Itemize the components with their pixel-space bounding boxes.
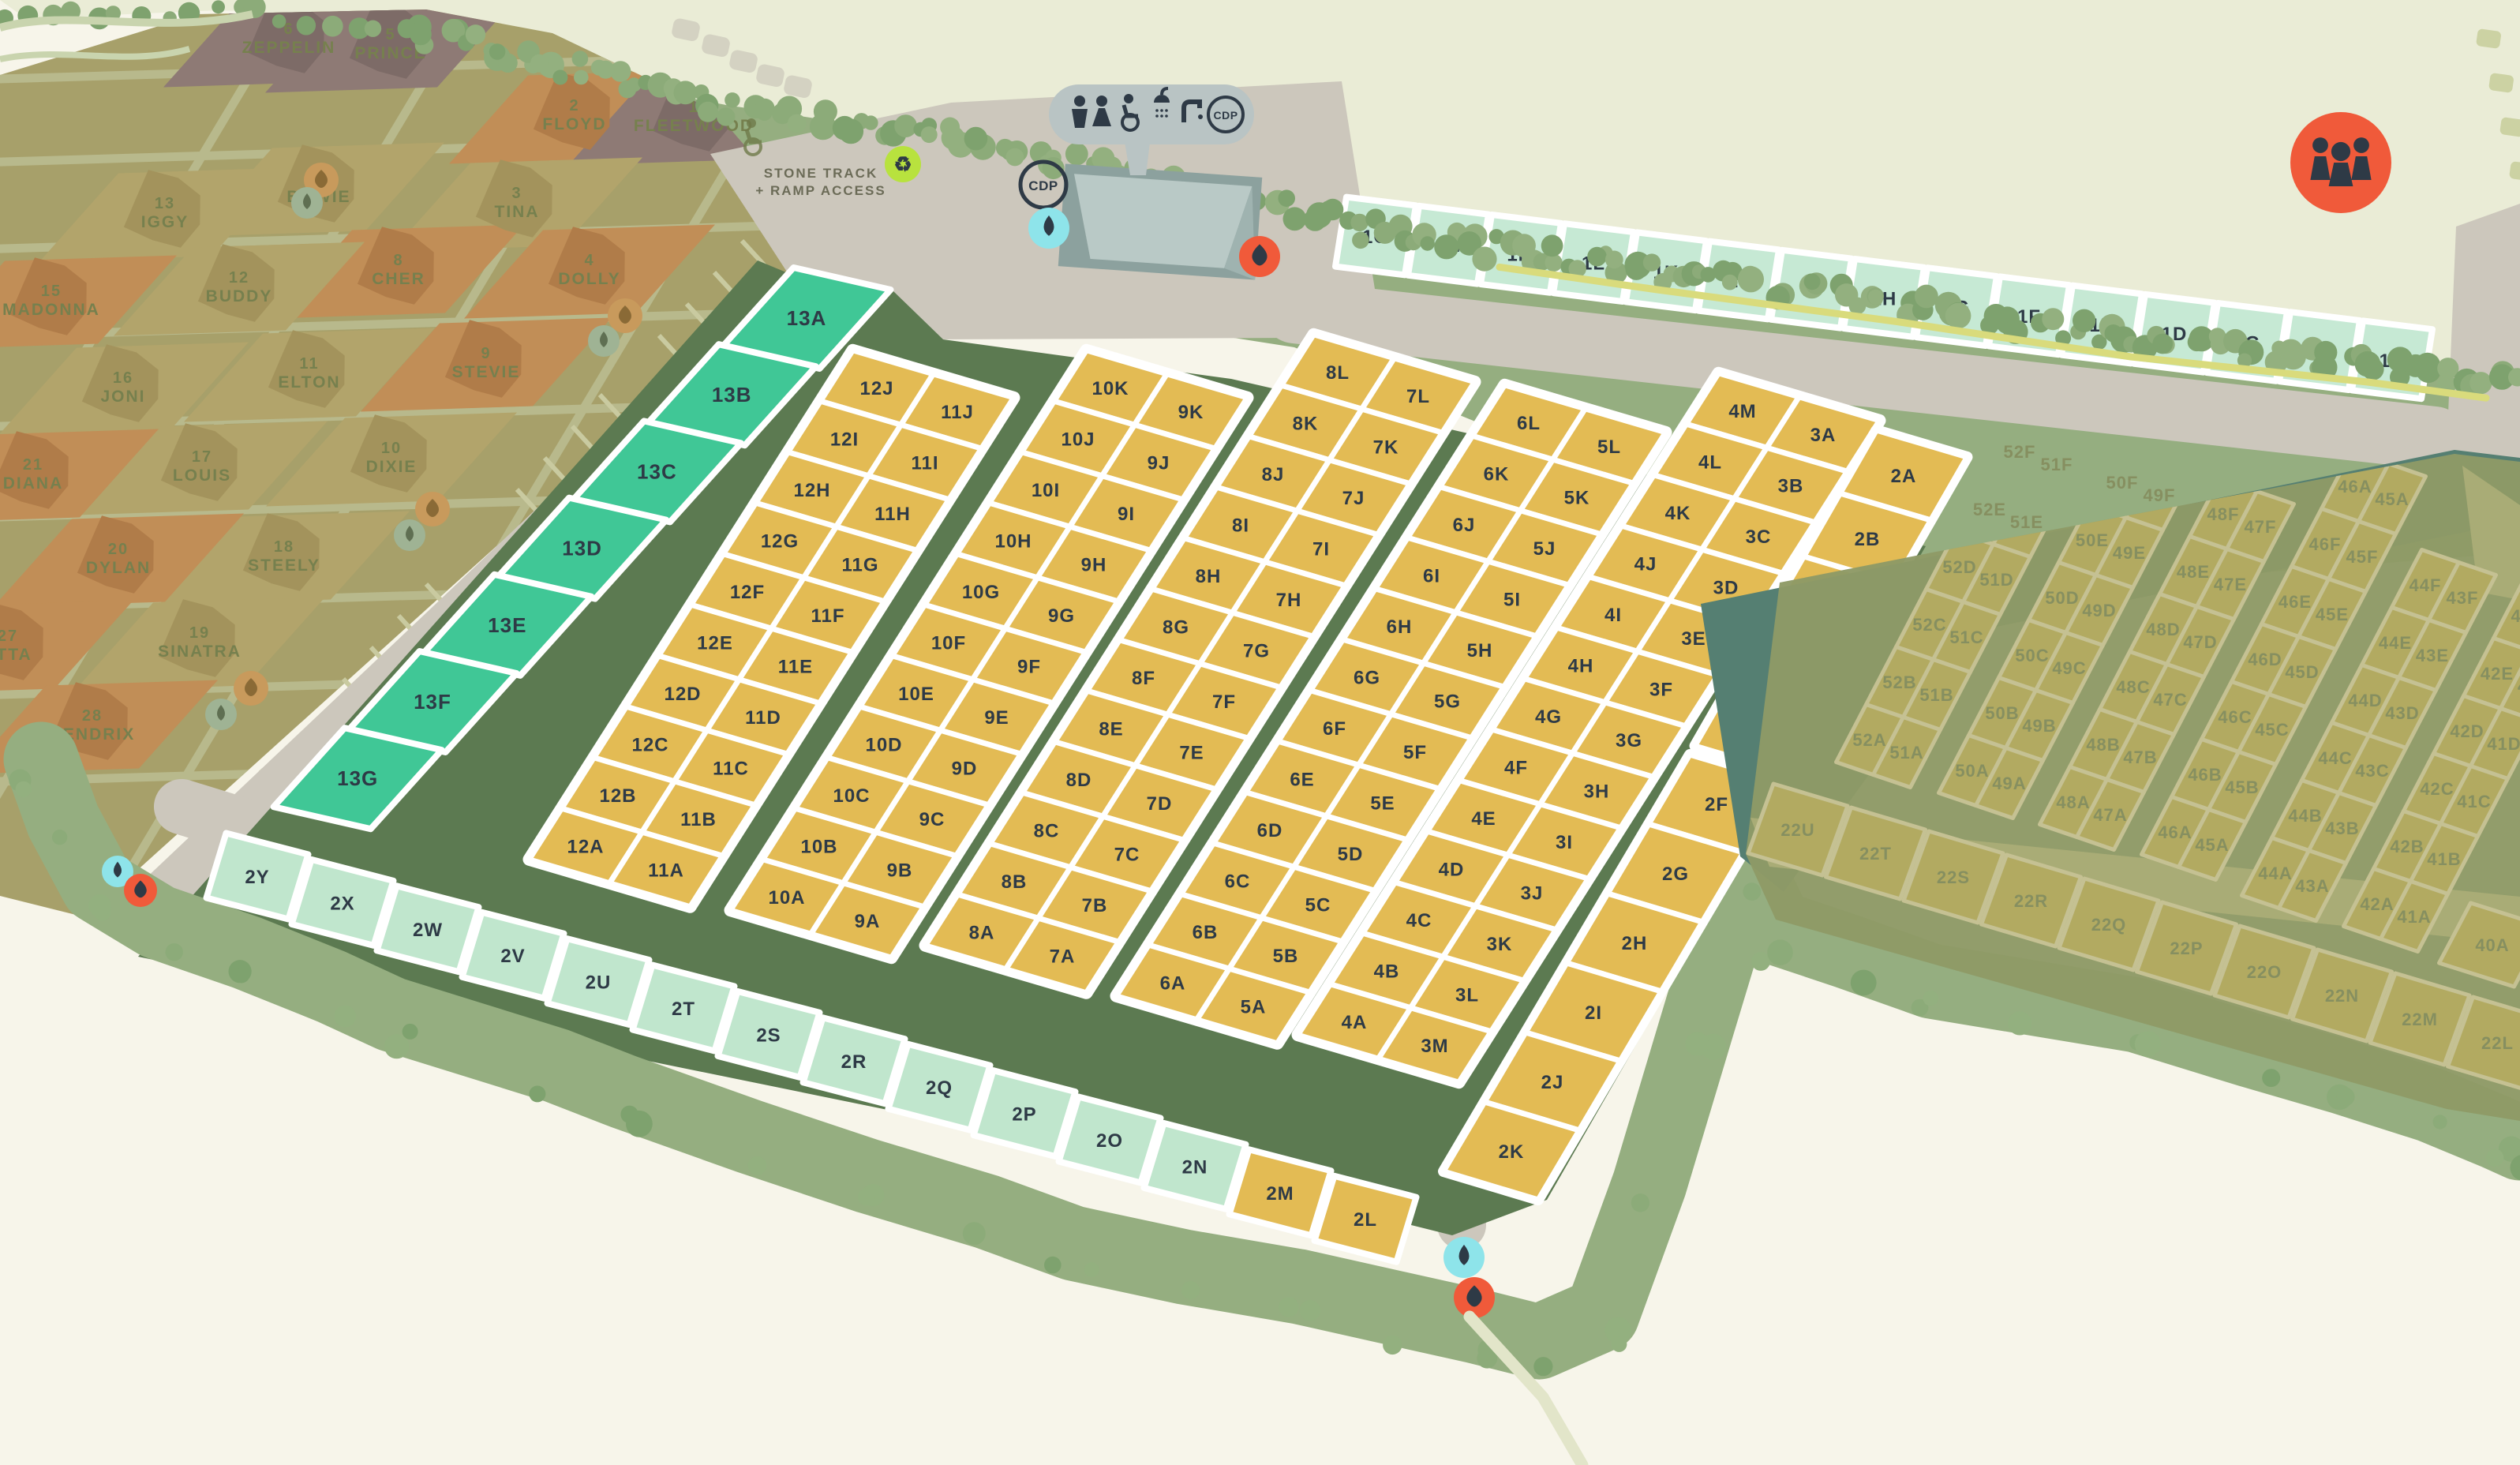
svg-text:42D: 42D	[2450, 721, 2484, 741]
svg-text:2S: 2S	[756, 1025, 781, 1046]
svg-text:7A: 7A	[1050, 946, 1076, 968]
svg-text:2V: 2V	[500, 946, 525, 967]
svg-text:JONI: JONI	[100, 388, 145, 406]
svg-text:3C: 3C	[1746, 526, 1772, 548]
svg-text:8J: 8J	[1262, 464, 1285, 485]
svg-text:49F: 49F	[2144, 485, 2176, 505]
svg-text:9J: 9J	[1148, 453, 1170, 474]
svg-text:2U: 2U	[586, 972, 612, 994]
svg-text:12C: 12C	[631, 735, 668, 756]
svg-text:7C: 7C	[1114, 845, 1140, 866]
svg-text:3D: 3D	[1713, 578, 1739, 599]
svg-text:3M: 3M	[1421, 1036, 1448, 1057]
svg-text:49E: 49E	[2113, 543, 2146, 563]
svg-text:2O: 2O	[1096, 1130, 1123, 1152]
svg-text:7E: 7E	[1179, 743, 1204, 764]
svg-text:46A: 46A	[2338, 477, 2372, 496]
svg-text:45C: 45C	[2255, 720, 2289, 740]
svg-text:44C: 44C	[2318, 748, 2352, 768]
svg-text:4K: 4K	[1665, 503, 1691, 524]
svg-text:48F: 48F	[2207, 504, 2240, 524]
svg-text:5I: 5I	[1503, 590, 1521, 611]
svg-text:2I: 2I	[1585, 1002, 1602, 1024]
svg-text:51A: 51A	[1889, 743, 1923, 762]
svg-text:51E: 51E	[2010, 512, 2043, 532]
svg-text:10B: 10B	[800, 837, 837, 858]
svg-text:9A: 9A	[855, 911, 881, 932]
svg-text:5J: 5J	[1533, 538, 1556, 560]
svg-text:6C: 6C	[1225, 871, 1251, 893]
svg-text:51D: 51D	[1979, 570, 2013, 590]
svg-text:49D: 49D	[2082, 601, 2116, 620]
svg-text:7I: 7I	[1312, 539, 1330, 560]
svg-text:17: 17	[192, 448, 212, 466]
svg-text:3: 3	[511, 185, 522, 202]
svg-text:4: 4	[584, 252, 594, 269]
svg-text:ETTA: ETTA	[0, 646, 32, 664]
svg-text:41D: 41D	[2487, 734, 2520, 754]
svg-text:11I: 11I	[911, 453, 938, 474]
svg-text:13D: 13D	[562, 537, 602, 560]
svg-text:46B: 46B	[2188, 765, 2222, 785]
svg-text:8A: 8A	[969, 923, 995, 944]
svg-text:47A: 47A	[2093, 805, 2127, 825]
svg-text:DIXIE: DIXIE	[366, 458, 418, 476]
svg-text:2Q: 2Q	[926, 1077, 953, 1099]
svg-text:44A: 44A	[2258, 864, 2292, 883]
svg-text:8K: 8K	[1293, 414, 1319, 435]
svg-text:42E: 42E	[2481, 664, 2514, 684]
svg-text:45E: 45E	[2316, 605, 2349, 624]
svg-text:4I: 4I	[1604, 605, 1622, 626]
svg-text:10J: 10J	[1061, 429, 1095, 451]
svg-text:43B: 43B	[2325, 819, 2359, 838]
svg-text:44F: 44F	[2410, 575, 2442, 595]
svg-text:43D: 43D	[2385, 703, 2419, 723]
svg-text:13E: 13E	[488, 613, 526, 637]
svg-text:51C: 51C	[1949, 628, 1983, 647]
svg-text:6E: 6E	[1290, 770, 1314, 791]
svg-text:6K: 6K	[1484, 464, 1510, 485]
svg-text:52C: 52C	[1912, 615, 1946, 635]
svg-text:46F: 46F	[2309, 534, 2342, 554]
svg-text:41B: 41B	[2427, 849, 2461, 869]
svg-text:47F: 47F	[2245, 517, 2277, 537]
svg-text:52F: 52F	[2004, 442, 2036, 462]
svg-text:4D: 4D	[1439, 860, 1465, 881]
svg-text:47D: 47D	[2183, 632, 2217, 652]
svg-text:STONE TRACK: STONE TRACK	[764, 166, 878, 181]
svg-text:4A: 4A	[1342, 1012, 1368, 1033]
svg-text:8G: 8G	[1163, 617, 1189, 639]
svg-text:3H: 3H	[1584, 781, 1610, 803]
svg-text:9B: 9B	[887, 860, 913, 882]
svg-text:9: 9	[481, 345, 491, 362]
svg-text:7L: 7L	[1406, 386, 1430, 407]
svg-text:49B: 49B	[2022, 716, 2056, 736]
svg-text:48A: 48A	[2056, 792, 2090, 812]
svg-text:10: 10	[381, 440, 402, 457]
svg-text:43A: 43A	[2295, 876, 2329, 896]
svg-text:12A: 12A	[567, 837, 604, 858]
svg-text:47B: 47B	[2123, 747, 2157, 767]
svg-text:5F: 5F	[1403, 742, 1427, 763]
svg-text:6I: 6I	[1423, 566, 1440, 587]
svg-text:DYLAN: DYLAN	[86, 559, 151, 577]
svg-text:12I: 12I	[830, 429, 859, 451]
svg-text:6D: 6D	[1257, 820, 1283, 841]
svg-text:4G: 4G	[1535, 706, 1562, 728]
svg-text:7D: 7D	[1147, 793, 1173, 815]
svg-text:43E: 43E	[2416, 646, 2449, 665]
svg-text:5H: 5H	[1467, 640, 1493, 661]
svg-text:10F: 10F	[931, 633, 966, 654]
svg-text:5A: 5A	[1241, 997, 1267, 1018]
svg-text:5K: 5K	[1564, 488, 1590, 509]
svg-text:50C: 50C	[2015, 646, 2049, 665]
svg-text:FLEETWOOD: FLEETWOOD	[634, 117, 754, 135]
svg-text:DOLLY: DOLLY	[558, 270, 620, 288]
svg-text:9F: 9F	[1017, 657, 1041, 678]
svg-text:18: 18	[274, 538, 294, 556]
svg-text:22L: 22L	[2481, 1033, 2514, 1053]
svg-text:12F: 12F	[730, 582, 765, 603]
svg-text:2M: 2M	[1266, 1183, 1294, 1205]
svg-text:2X: 2X	[330, 893, 354, 914]
svg-text:16: 16	[113, 369, 133, 387]
svg-text:10H: 10H	[994, 531, 1032, 553]
svg-text:IGGY: IGGY	[141, 213, 189, 231]
svg-text:6J: 6J	[1453, 515, 1476, 536]
svg-text:9D: 9D	[952, 759, 978, 780]
svg-text:10C: 10C	[833, 785, 870, 807]
svg-text:2P: 2P	[1012, 1104, 1036, 1126]
svg-text:50A: 50A	[1955, 761, 1989, 781]
svg-text:46C: 46C	[2218, 707, 2252, 727]
svg-text:3B: 3B	[1778, 476, 1804, 497]
svg-text:47C: 47C	[2153, 690, 2187, 710]
svg-text:5B: 5B	[1273, 946, 1299, 967]
svg-text:50F: 50F	[2106, 473, 2139, 493]
svg-text:2J: 2J	[1541, 1072, 1564, 1093]
svg-text:22R: 22R	[2014, 891, 2048, 911]
svg-text:52A: 52A	[1852, 730, 1886, 750]
svg-text:12J: 12J	[859, 378, 893, 399]
svg-text:MADONNA: MADONNA	[2, 301, 100, 319]
svg-text:13B: 13B	[712, 383, 752, 407]
svg-text:7H: 7H	[1276, 590, 1302, 611]
svg-text:5G: 5G	[1434, 691, 1461, 713]
svg-text:DIANA: DIANA	[3, 474, 64, 493]
svg-text:13A: 13A	[787, 306, 827, 330]
svg-text:2Y: 2Y	[245, 867, 269, 888]
svg-text:9G: 9G	[1048, 605, 1075, 627]
svg-text:10E: 10E	[898, 684, 934, 705]
svg-text:8D: 8D	[1066, 770, 1092, 791]
svg-text:7F: 7F	[1212, 691, 1236, 713]
svg-text:45A: 45A	[2195, 835, 2229, 855]
svg-text:42C: 42C	[2420, 779, 2454, 799]
svg-text:22N: 22N	[2325, 986, 2359, 1006]
svg-text:4H: 4H	[1568, 656, 1594, 677]
svg-text:48E: 48E	[2177, 562, 2210, 582]
svg-text:CHER: CHER	[372, 270, 425, 288]
svg-text:2T: 2T	[672, 999, 695, 1020]
svg-text:11F: 11F	[811, 605, 844, 627]
svg-text:6B: 6B	[1193, 922, 1219, 943]
svg-text:2G: 2G	[1662, 864, 1689, 885]
svg-text:13: 13	[155, 195, 175, 212]
svg-text:9C: 9C	[919, 809, 945, 830]
svg-text:28: 28	[82, 707, 103, 725]
svg-text:48C: 48C	[2116, 677, 2150, 697]
svg-text:10I: 10I	[1032, 480, 1060, 501]
svg-text:2L: 2L	[1354, 1209, 1377, 1231]
svg-text:5L: 5L	[1597, 437, 1621, 458]
svg-text:52B: 52B	[1882, 673, 1916, 692]
svg-text:6F: 6F	[1323, 718, 1346, 740]
svg-text:8I: 8I	[1232, 515, 1249, 537]
svg-text:46A: 46A	[2158, 822, 2192, 842]
svg-text:49C: 49C	[2052, 658, 2086, 678]
svg-text:11B: 11B	[680, 809, 717, 830]
svg-text:4B: 4B	[1374, 961, 1400, 983]
svg-text:50B: 50B	[1985, 703, 2019, 723]
svg-text:8L: 8L	[1326, 362, 1350, 384]
svg-text:52E: 52E	[1973, 500, 2006, 519]
svg-text:45B: 45B	[2225, 777, 2259, 797]
svg-text:43F: 43F	[2447, 588, 2479, 608]
svg-text:2N: 2N	[1182, 1156, 1208, 1178]
svg-text:11C: 11C	[713, 759, 749, 780]
svg-text:♻: ♻	[893, 152, 912, 176]
svg-text:5E: 5E	[1370, 793, 1395, 815]
svg-text:2A: 2A	[1891, 466, 1917, 487]
svg-text:42A: 42A	[2360, 894, 2394, 914]
svg-text:7G: 7G	[1243, 641, 1270, 662]
svg-text:41C: 41C	[2457, 792, 2491, 811]
svg-text:10D: 10D	[865, 735, 902, 756]
svg-text:15: 15	[41, 283, 62, 300]
svg-text:21: 21	[23, 456, 43, 474]
svg-text:7K: 7K	[1373, 437, 1399, 459]
svg-text:4M: 4M	[1728, 401, 1756, 422]
svg-text:44E: 44E	[2379, 633, 2412, 653]
svg-text:6G: 6G	[1354, 668, 1380, 689]
svg-text:6A: 6A	[1160, 973, 1186, 995]
svg-text:22S: 22S	[1937, 867, 1970, 887]
svg-text:STEELY: STEELY	[248, 556, 320, 575]
svg-text:48D: 48D	[2146, 620, 2180, 639]
svg-text:5D: 5D	[1338, 844, 1364, 865]
svg-text:11A: 11A	[648, 860, 684, 882]
svg-text:2R: 2R	[841, 1051, 867, 1073]
svg-text:46D: 46D	[2248, 650, 2282, 669]
svg-text:3I: 3I	[1556, 832, 1573, 853]
svg-text:9I: 9I	[1118, 504, 1135, 525]
svg-text:ELTON: ELTON	[278, 373, 340, 392]
svg-text:42F: 42F	[2511, 606, 2520, 626]
svg-text:8C: 8C	[1034, 821, 1060, 842]
svg-text:3A: 3A	[1810, 425, 1837, 446]
svg-text:45F: 45F	[2346, 547, 2379, 567]
svg-text:4C: 4C	[1406, 910, 1432, 931]
svg-text:+ RAMP ACCESS: + RAMP ACCESS	[755, 183, 886, 198]
svg-text:8E: 8E	[1099, 719, 1123, 740]
svg-text:12B: 12B	[599, 785, 636, 807]
svg-text:41A: 41A	[2397, 907, 2431, 927]
svg-text:6L: 6L	[1517, 413, 1541, 434]
svg-text:TINA: TINA	[495, 203, 540, 221]
svg-text:4J: 4J	[1634, 554, 1657, 575]
svg-text:47E: 47E	[2214, 575, 2247, 594]
svg-text:11: 11	[299, 355, 319, 373]
svg-text:CDP: CDP	[1213, 109, 1238, 122]
svg-text:3J: 3J	[1521, 883, 1544, 905]
svg-text:2H: 2H	[1622, 933, 1648, 954]
svg-text:2F: 2F	[1705, 794, 1728, 815]
svg-text:7B: 7B	[1082, 895, 1108, 916]
svg-text:46E: 46E	[2278, 592, 2312, 612]
svg-text:12E: 12E	[697, 633, 733, 654]
svg-text:3E: 3E	[1681, 628, 1706, 650]
svg-text:13C: 13C	[637, 459, 677, 483]
svg-text:4F: 4F	[1504, 758, 1528, 779]
svg-text:22T: 22T	[1859, 844, 1892, 864]
svg-text:13F: 13F	[414, 690, 451, 714]
svg-text:50D: 50D	[2045, 588, 2079, 608]
svg-text:3F: 3F	[1649, 680, 1673, 701]
svg-text:43C: 43C	[2355, 761, 2389, 781]
svg-text:3L: 3L	[1455, 985, 1479, 1006]
svg-text:CDP: CDP	[1028, 178, 1058, 193]
svg-text:5: 5	[385, 26, 395, 43]
svg-text:SINATRA: SINATRA	[158, 643, 242, 661]
svg-text:4L: 4L	[1698, 452, 1722, 474]
svg-text:3K: 3K	[1487, 934, 1513, 955]
svg-text:48B: 48B	[2086, 735, 2120, 755]
svg-text:10K: 10K	[1092, 378, 1129, 399]
svg-text:40A: 40A	[2475, 935, 2509, 955]
svg-text:52D: 52D	[1942, 557, 1976, 577]
svg-text:2B: 2B	[1855, 529, 1881, 550]
svg-text:12D: 12D	[664, 684, 701, 705]
svg-text:BUDDY: BUDDY	[206, 287, 273, 305]
svg-text:8F: 8F	[1132, 668, 1155, 689]
svg-text:7J: 7J	[1342, 488, 1365, 509]
svg-text:12: 12	[229, 269, 249, 287]
svg-text:45D: 45D	[2285, 662, 2319, 682]
svg-text:44D: 44D	[2348, 691, 2382, 710]
svg-text:13G: 13G	[337, 766, 378, 790]
svg-text:22O: 22O	[2247, 962, 2282, 982]
svg-text:FLOYD: FLOYD	[542, 115, 606, 133]
svg-text:11H: 11H	[874, 504, 911, 525]
svg-text:11J: 11J	[941, 402, 974, 423]
svg-text:ZEPPELIN: ZEPPELIN	[242, 39, 336, 57]
svg-text:2K: 2K	[1499, 1141, 1525, 1163]
svg-text:10A: 10A	[768, 887, 805, 909]
svg-text:50E: 50E	[2076, 530, 2109, 550]
svg-text:6H: 6H	[1387, 616, 1413, 638]
svg-text:4E: 4E	[1471, 808, 1496, 830]
svg-text:STEVIE: STEVIE	[452, 363, 521, 381]
svg-text:11D: 11D	[745, 707, 781, 729]
svg-text:8B: 8B	[1002, 871, 1028, 893]
svg-text:11E: 11E	[778, 657, 813, 678]
svg-text:44B: 44B	[2288, 806, 2322, 826]
svg-text:3G: 3G	[1616, 730, 1642, 751]
svg-text:49A: 49A	[1992, 774, 2026, 793]
svg-text:22Q: 22Q	[2091, 915, 2127, 935]
svg-text:20: 20	[108, 541, 129, 558]
svg-text:9K: 9K	[1178, 402, 1204, 423]
svg-text:19: 19	[189, 624, 210, 642]
svg-text:9E: 9E	[984, 707, 1009, 729]
svg-text:22M: 22M	[2402, 1010, 2438, 1029]
svg-text:22U: 22U	[1780, 820, 1814, 840]
svg-text:45A: 45A	[2375, 489, 2409, 509]
svg-text:27: 27	[0, 628, 18, 645]
svg-text:12G: 12G	[761, 531, 799, 553]
svg-text:9H: 9H	[1081, 555, 1107, 576]
svg-text:51F: 51F	[2041, 455, 2073, 474]
svg-text:11G: 11G	[841, 555, 878, 576]
svg-text:5C: 5C	[1305, 895, 1331, 916]
svg-text:2W: 2W	[413, 920, 443, 941]
svg-text:51B: 51B	[1919, 685, 1953, 705]
svg-text:12H: 12H	[793, 480, 830, 501]
svg-text:10G: 10G	[962, 582, 1000, 603]
svg-text:8H: 8H	[1196, 566, 1222, 587]
svg-text:22P: 22P	[2170, 939, 2203, 958]
svg-text:8: 8	[393, 252, 403, 269]
svg-text:LOUIS: LOUIS	[173, 466, 231, 485]
svg-text:2: 2	[569, 97, 579, 114]
svg-text:42B: 42B	[2390, 837, 2424, 856]
